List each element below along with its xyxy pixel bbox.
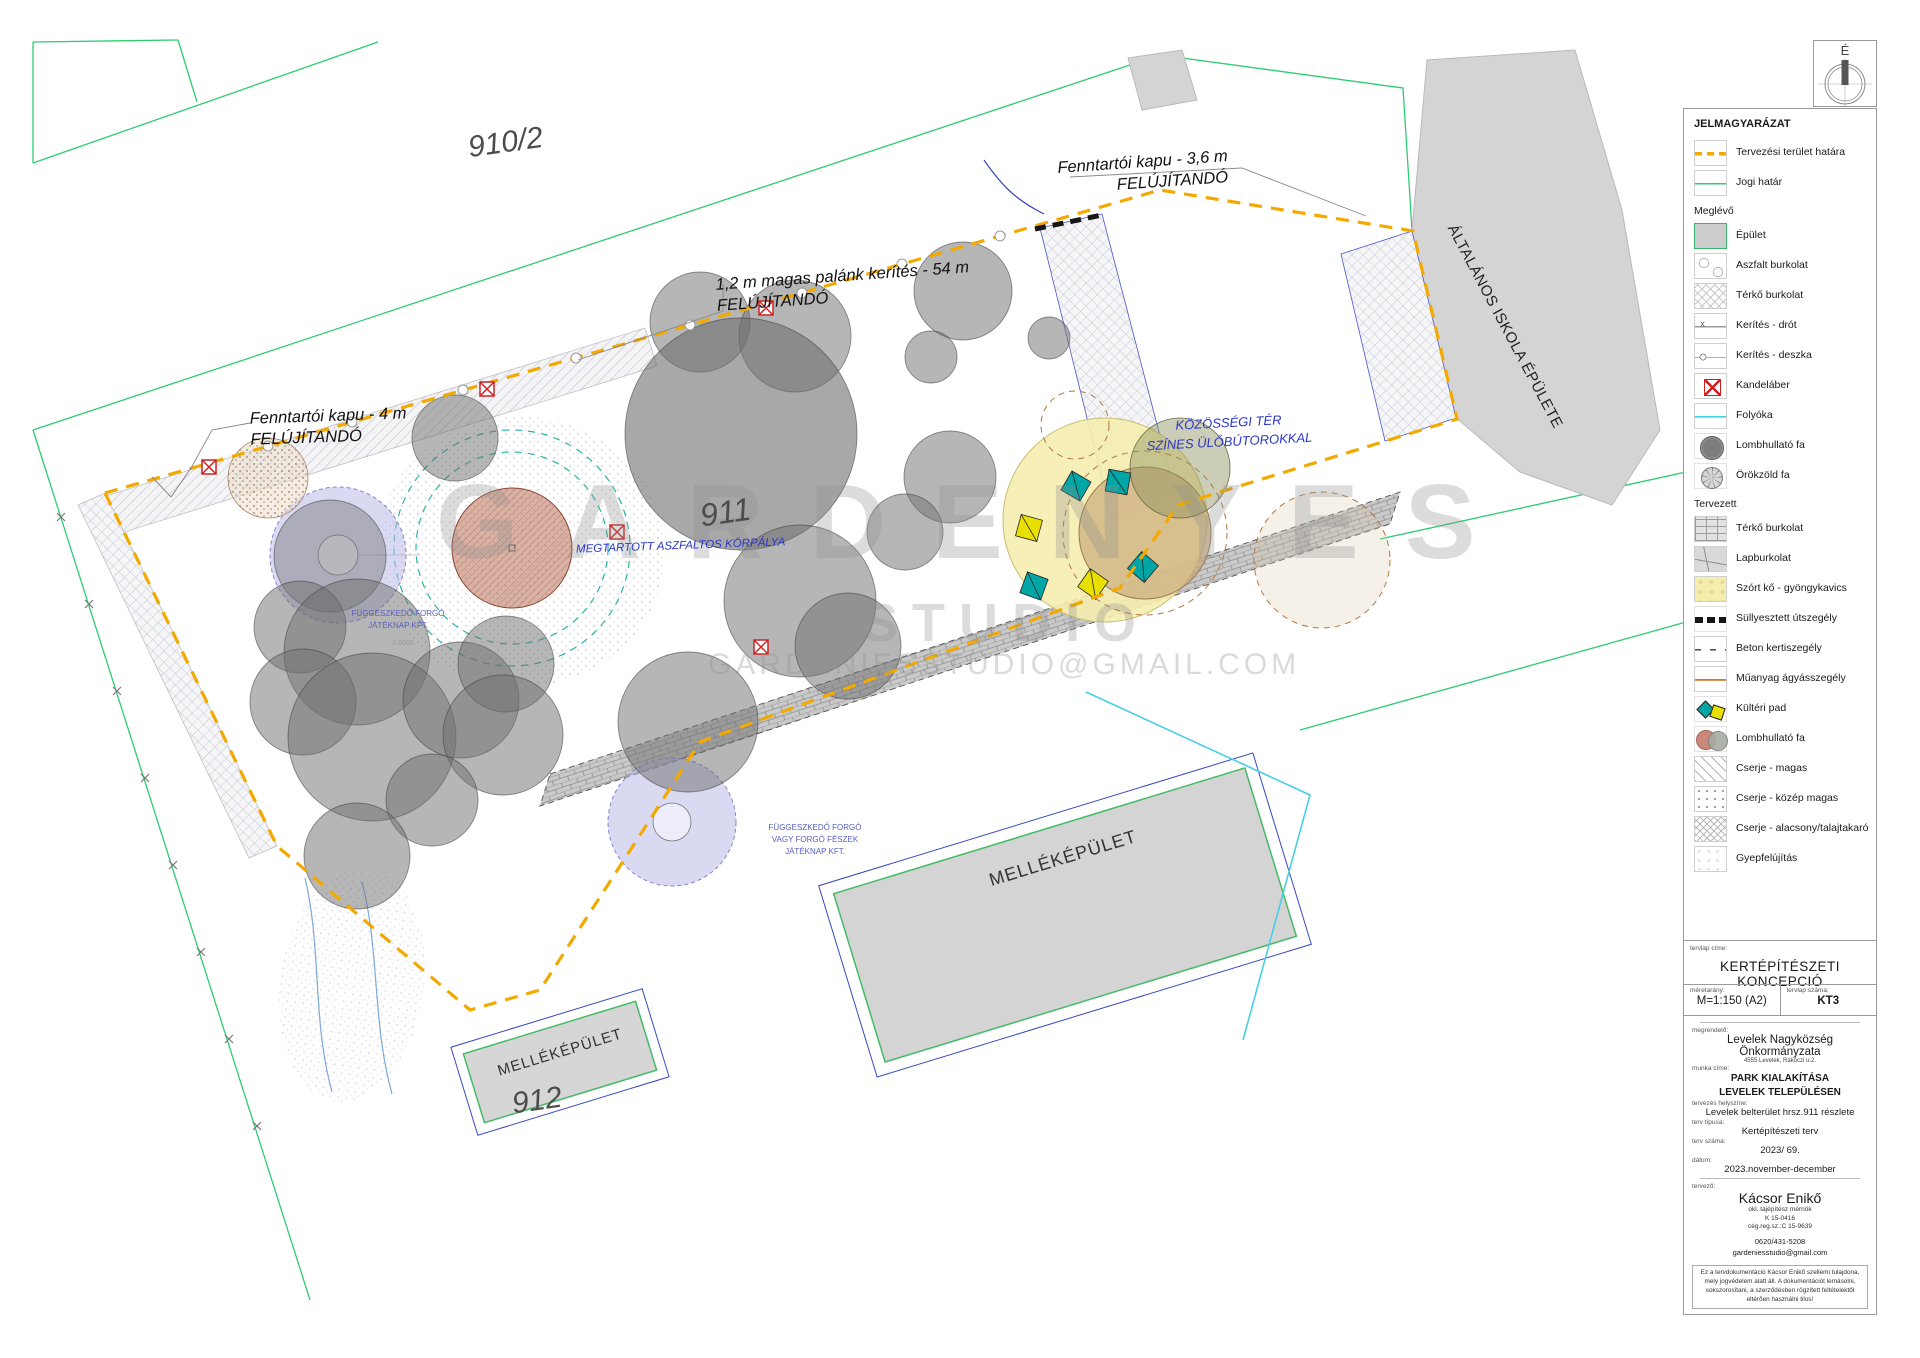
- legend-label: Térkő burkolat: [1736, 523, 1803, 535]
- boundary-line-icon: [1694, 140, 1727, 166]
- legend-label: Gyepfelújítás: [1736, 853, 1797, 865]
- gravel-swatch-icon: [1694, 576, 1727, 602]
- play1-line1: FÜGGESZKEDŐ FORGÓ: [344, 608, 452, 620]
- designer-email: gardeniesstudio@gmail.com: [1692, 1247, 1868, 1258]
- plan-type-field: terv típusa: Kertépítészeti terv: [1692, 1119, 1868, 1137]
- project-info-cell: megrendelő: Levelek Nagyközség Önkormány…: [1684, 1015, 1876, 1314]
- designer-name: Kácsor Enikő: [1692, 1190, 1868, 1206]
- designer-phone: 0620/431-5208: [1692, 1236, 1868, 1247]
- paver-planned-swatch-icon: [1694, 516, 1727, 542]
- legend-label: Aszfalt burkolat: [1736, 260, 1808, 272]
- legend-item: Örökzöld fa: [1694, 461, 1870, 491]
- legend-label: Lapburkolat: [1736, 553, 1791, 565]
- legend-label: Süllyesztett útszegély: [1736, 613, 1837, 625]
- designer-label: tervező:: [1692, 1183, 1868, 1190]
- scale-cell: méretarány: M=1:150 (A2): [1684, 985, 1780, 1015]
- designer-title: okl. tájépítész mérnök: [1692, 1206, 1868, 1214]
- sheet-number: KT3: [1787, 995, 1871, 1007]
- legend-item: Térkő burkolat: [1694, 514, 1870, 544]
- legend-label: Kerítés - deszka: [1736, 350, 1812, 362]
- legend-label: Folyóka: [1736, 410, 1773, 422]
- dimension-label: 3.0000: [392, 640, 413, 647]
- north-label: É: [1814, 43, 1876, 58]
- outbuilding-large: [819, 753, 1312, 1077]
- evergreen-tree-icon: [1694, 463, 1727, 489]
- location-value: Levelek belterület hrsz.911 részlete: [1692, 1107, 1868, 1118]
- scale-label: méretarány:: [1690, 987, 1774, 994]
- client-label: megrendelő:: [1692, 1027, 1868, 1034]
- legend-label: Cserje - közép magas: [1736, 793, 1838, 805]
- north-arrow: É: [1813, 40, 1877, 107]
- legend-item: Gyepfelújítás: [1694, 844, 1870, 874]
- play-equipment-annotation-1: FÜGGESZKEDŐ FORGÓ JÁTÉKNAP KFT.: [344, 608, 452, 632]
- plan-number-field: terv száma: 2023/ 69.: [1692, 1138, 1868, 1156]
- lamppost-icon: [1694, 373, 1727, 399]
- location-label: tervezés helyszíne:: [1692, 1100, 1868, 1107]
- north-arrow-icon: [1814, 58, 1876, 106]
- play2-line1: FÜGGESZKEDŐ FORGÓ: [756, 822, 874, 834]
- slab-swatch-icon: [1694, 546, 1727, 572]
- legend-label: Jogi határ: [1736, 177, 1782, 189]
- date-value: 2023.november-december: [1692, 1164, 1868, 1175]
- legend-item: Műanyag ágyásszegély: [1694, 664, 1870, 694]
- play1-line2: JÁTÉKNAP KFT.: [344, 620, 452, 632]
- paver-existing-swatch-icon: [1694, 283, 1727, 309]
- legend-label: Tervezési terület határa: [1736, 147, 1845, 159]
- sheet-number-cell: tervlap száma: KT3: [1780, 985, 1877, 1015]
- scale-row: méretarány: M=1:150 (A2) tervlap száma: …: [1684, 984, 1876, 1015]
- legend-item: Kerítés - drót: [1694, 311, 1870, 341]
- designer-reg1: K 15-0416: [1692, 1215, 1868, 1223]
- legend-label: Épület: [1736, 230, 1766, 242]
- work-title-line1: PARK KIALAKÍTÁSA: [1692, 1072, 1868, 1086]
- legend-item: Szórt kő - gyöngykavics: [1694, 574, 1870, 604]
- sunken-curb-icon: [1694, 606, 1727, 632]
- client-address: 4555 Levelek, Rákóczi u.2.: [1692, 1058, 1868, 1064]
- legend-item: Kandeláber: [1694, 371, 1870, 401]
- legend-label: Lombhullató fa: [1736, 440, 1805, 452]
- parcel-label-911: 911: [698, 491, 754, 535]
- legend-title: JELMAGYARÁZAT: [1694, 118, 1870, 130]
- legend-label: Lombhullató fa: [1736, 733, 1805, 745]
- building-swatch-icon: [1694, 223, 1727, 249]
- legend-item: Beton kertiszegély: [1694, 634, 1870, 664]
- sheet-number-label: tervlap száma:: [1787, 987, 1871, 994]
- legend-label: Beton kertiszegély: [1736, 643, 1822, 655]
- sheet-title-label: tervlap címe:: [1690, 945, 1870, 952]
- legend-item: Kerítés - deszka: [1694, 341, 1870, 371]
- asphalt-swatch-icon: [1694, 253, 1727, 279]
- designer-reg2: cég.reg.sz.:C 15-9639: [1692, 1223, 1868, 1231]
- legend-item: Lapburkolat: [1694, 544, 1870, 574]
- work-title-field: munka címe: PARK KIALAKÍTÁSA LEVELEK TEL…: [1692, 1065, 1868, 1099]
- parcel-label-912: 912: [510, 1081, 564, 1122]
- board-fence-icon: [1694, 343, 1727, 369]
- deciduous-tree-icon: [1694, 433, 1727, 459]
- legend-section-planned: Tervezett: [1694, 498, 1870, 510]
- legend-item: Tervezési terület határa: [1694, 138, 1870, 168]
- legend-item: Cserje - közép magas: [1694, 784, 1870, 814]
- legend-item: Süllyesztett útszegély: [1694, 604, 1870, 634]
- legend-label: Térkő burkolat: [1736, 290, 1803, 302]
- scale-value: M=1:150 (A2): [1690, 995, 1774, 1007]
- legend-list: JELMAGYARÁZAT Tervezési terület határa J…: [1684, 109, 1876, 874]
- legend-label: Kerítés - drót: [1736, 320, 1797, 332]
- client-name: Levelek Nagyközség Önkormányzata: [1692, 1034, 1868, 1058]
- shrub-medium-icon: [1694, 786, 1727, 812]
- shrub-low-icon: [1694, 816, 1727, 842]
- copyright-disclaimer: Ez a tervdokumentáció Kácsor Enikő szell…: [1692, 1265, 1868, 1309]
- plan-type-label: terv típusa:: [1692, 1119, 1868, 1126]
- client-field: megrendelő: Levelek Nagyközség Önkormány…: [1692, 1027, 1868, 1064]
- legend-item: Kültéri pad: [1694, 694, 1870, 724]
- date-label: dátum:: [1692, 1157, 1868, 1164]
- work-title-line2: LEVELEK TELEPÜLÉSEN: [1692, 1086, 1868, 1100]
- legend-label: Műanyag ágyásszegély: [1736, 673, 1846, 685]
- legend-item: Cserje - alacsony/talajtakaró: [1694, 814, 1870, 844]
- legend-item: Jogi határ: [1694, 168, 1870, 198]
- lawn-icon: [1694, 846, 1727, 872]
- gutter-line-icon: [1694, 403, 1727, 429]
- legend-item: Folyóka: [1694, 401, 1870, 431]
- legend-label: Cserje - magas: [1736, 763, 1807, 775]
- legend-item: Aszfalt burkolat: [1694, 251, 1870, 281]
- date-field: dátum: 2023.november-december: [1692, 1157, 1868, 1175]
- site-plan-canvas: [0, 0, 1920, 1358]
- title-block: tervlap címe: KERTÉPÍTÉSZETI KONCEPCIÓ m…: [1684, 940, 1876, 1314]
- legend-label: Kültéri pad: [1736, 703, 1786, 715]
- legend-panel: JELMAGYARÁZAT Tervezési terület határa J…: [1683, 108, 1877, 1315]
- gate-left-annotation: Fenntartói kapu - 4 m FELÚJÍTANDÓ: [249, 403, 407, 450]
- concrete-edge-icon: [1694, 636, 1727, 662]
- divider: [1700, 1022, 1860, 1023]
- planned-tree-icon: [1694, 726, 1727, 752]
- legend-label: Szórt kő - gyöngykavics: [1736, 583, 1847, 595]
- divider: [1700, 1178, 1860, 1179]
- plan-number-label: terv száma:: [1692, 1138, 1868, 1145]
- legend-item: Térkő burkolat: [1694, 281, 1870, 311]
- legend-label: Cserje - alacsony/talajtakaró: [1736, 823, 1868, 835]
- legend-label: Kandeláber: [1736, 380, 1790, 392]
- wire-fence-icon: [1694, 313, 1727, 339]
- play2-line2: VAGY FORGÓ FÉSZEK: [756, 834, 874, 846]
- designer-field: tervező: Kácsor Enikő okl. tájépítész mé…: [1692, 1183, 1868, 1258]
- plastic-edge-icon: [1694, 666, 1727, 692]
- plan-sheet: GARDENYES STUDIO GARDENIESSTUDIO@GMAIL.C…: [0, 0, 1920, 1358]
- work-title-label: munka címe:: [1692, 1065, 1868, 1072]
- gutter-curve-top: [984, 160, 1044, 214]
- bench-icon: [1694, 696, 1727, 722]
- legend-item: Épület: [1694, 221, 1870, 251]
- plan-number-value: 2023/ 69.: [1692, 1145, 1868, 1156]
- play2-line3: JÁTÉKNAP KFT.: [756, 846, 874, 858]
- legend-section-existing: Meglévő: [1694, 205, 1870, 217]
- sheet-title-cell: tervlap címe: KERTÉPÍTÉSZETI KONCEPCIÓ: [1684, 940, 1876, 984]
- legal-line-icon: [1694, 170, 1727, 196]
- legend-label: Örökzöld fa: [1736, 470, 1790, 482]
- shrub-tall-icon: [1694, 756, 1727, 782]
- location-field: tervezés helyszíne: Levelek belterület h…: [1692, 1100, 1868, 1118]
- legend-item: Cserje - magas: [1694, 754, 1870, 784]
- legend-item: Lombhullató fa: [1694, 724, 1870, 754]
- legend-item: Lombhullató fa: [1694, 431, 1870, 461]
- plan-type-value: Kertépítészeti terv: [1692, 1126, 1868, 1137]
- play-equipment-annotation-2: FÜGGESZKEDŐ FORGÓ VAGY FORGÓ FÉSZEK JÁTÉ…: [756, 822, 874, 858]
